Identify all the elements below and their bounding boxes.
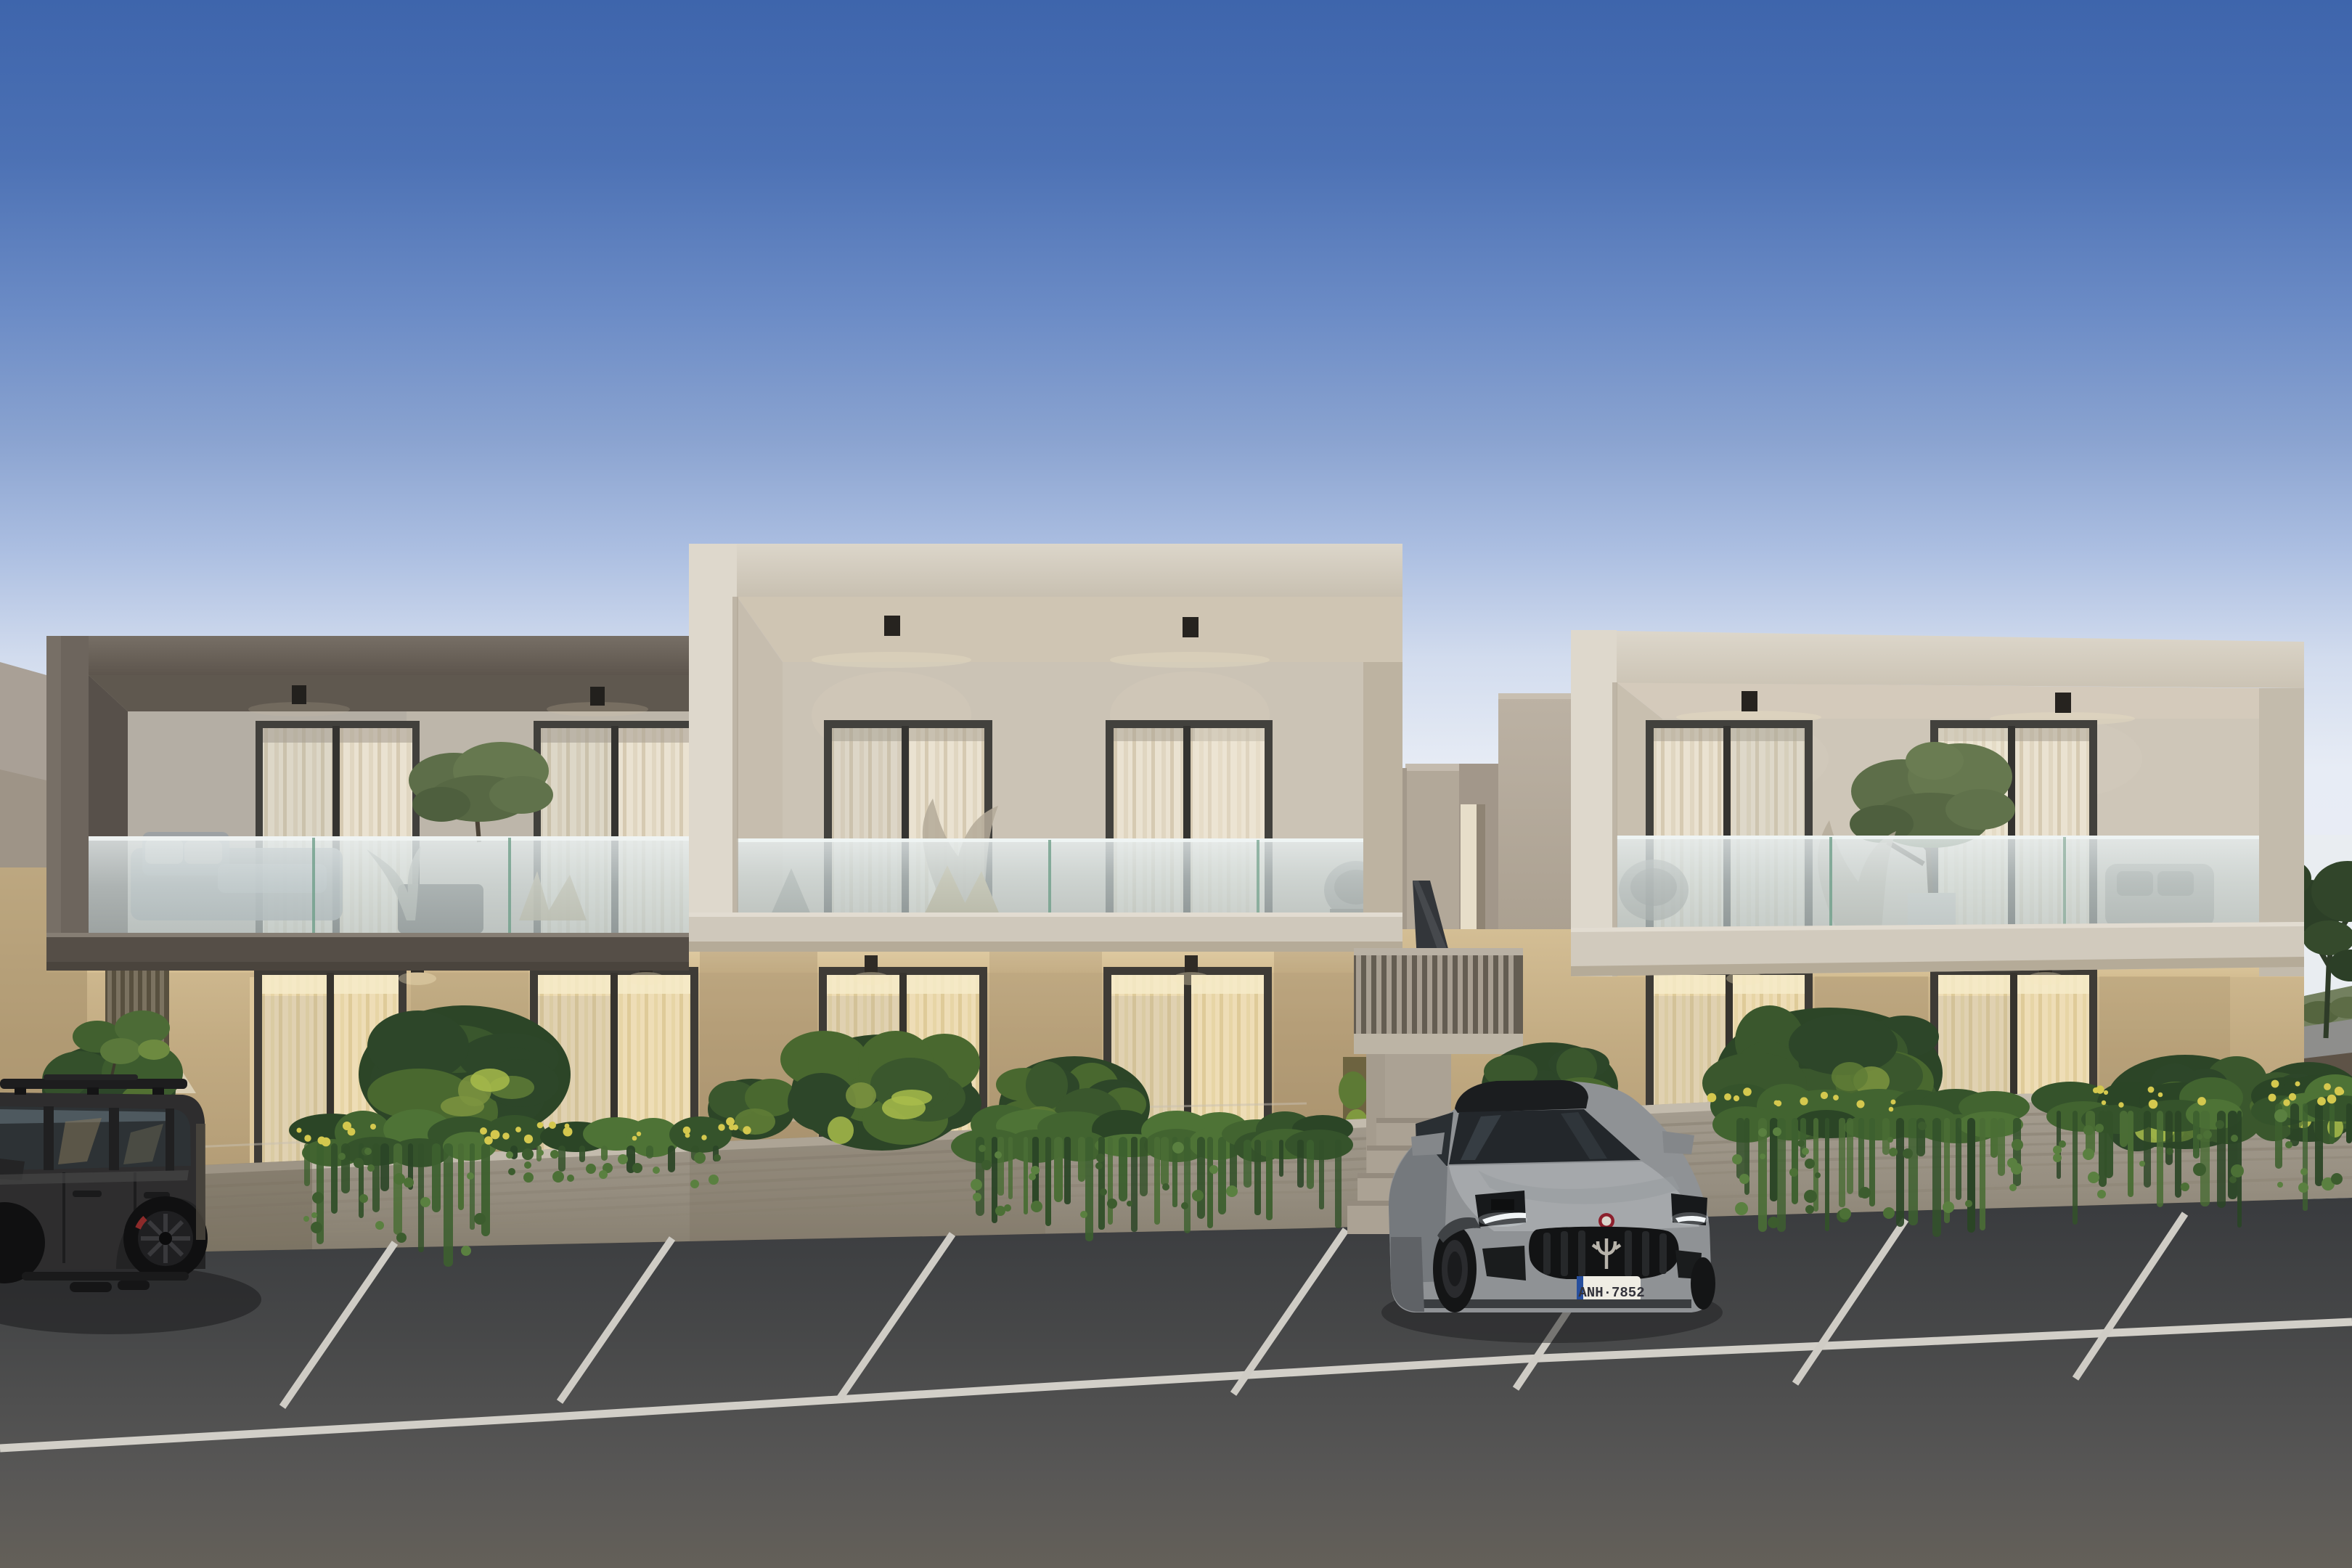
svg-text:ANH·7852: ANH·7852 — [1578, 1285, 1644, 1301]
